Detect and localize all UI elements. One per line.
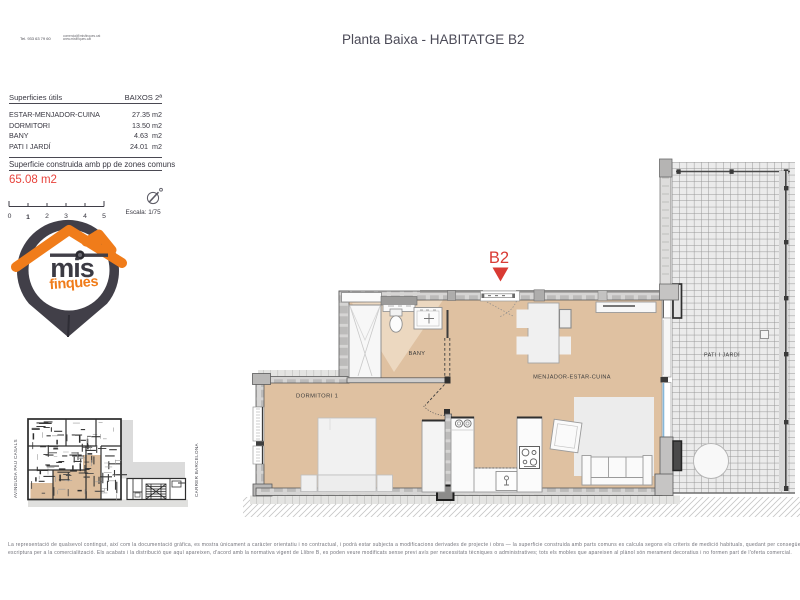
svg-text:AVINGUDA PAU CASALS: AVINGUDA PAU CASALS [13,439,18,498]
svg-text:PATI I JARDÍ: PATI I JARDÍ [704,352,740,359]
svg-text:MENJADOR-ESTAR-CUINA: MENJADOR-ESTAR-CUINA [533,375,611,381]
svg-text:BANY: BANY [409,351,426,357]
svg-text:DORMITORI 1: DORMITORI 1 [296,394,338,400]
svg-text:CARRER BARCELONA: CARRER BARCELONA [194,443,199,497]
svg-text:B2: B2 [489,249,509,267]
